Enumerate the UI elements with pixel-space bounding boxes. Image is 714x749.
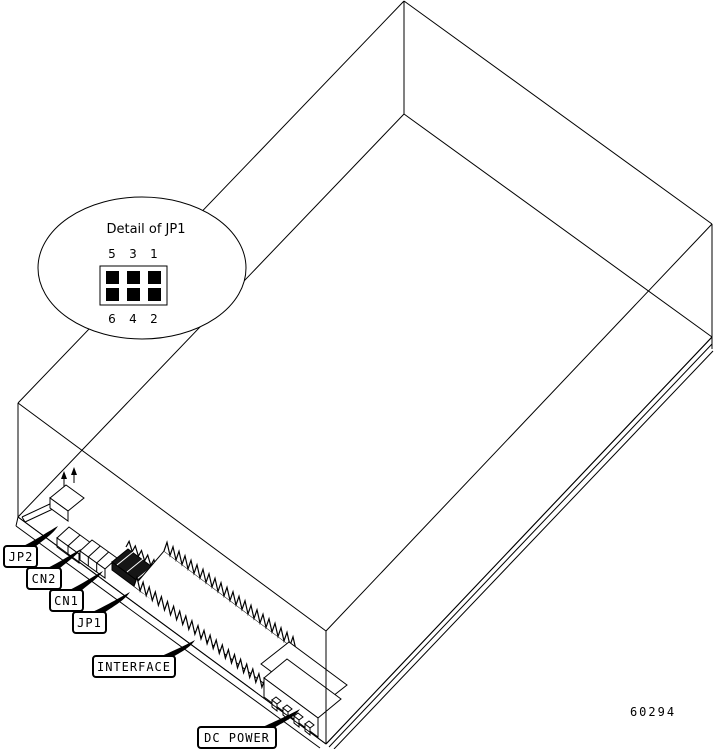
callout-label-jp2: JP2 (4, 526, 58, 567)
jp1-pin5-label: 5 (108, 247, 116, 261)
jp1-pin6-label: 6 (108, 312, 116, 326)
callout-text-jp1: JP1 (77, 616, 102, 630)
jp2-pin-arrowheads (61, 467, 77, 479)
callout-text-cn2: CN2 (32, 572, 57, 586)
callout-pointer-cn1 (67, 571, 103, 591)
detail-callout: Detail of JP1 5 3 1 6 4 2 (38, 197, 246, 339)
jp2-connector (22, 467, 84, 522)
cn1-connector (80, 540, 117, 578)
disk-drive-connector-diagram: Detail of JP1 5 3 1 6 4 2 JP2 CN2 CN1 (0, 0, 714, 749)
callout-pointer-interface (159, 640, 195, 657)
jp1-pin1-label: 1 (150, 247, 158, 261)
callout-text-dc-power: DC POWER (204, 731, 270, 745)
jp1-pin2-label: 2 (150, 312, 158, 326)
detail-callout-title: Detail of JP1 (106, 222, 185, 237)
jp1-pin4-label: 4 (129, 312, 137, 326)
chassis-vertical-edges (18, 1, 712, 744)
chassis-wireframe (18, 1, 712, 744)
diagram-canvas: Detail of JP1 5 3 1 6 4 2 JP2 CN2 CN1 (0, 0, 714, 749)
figure-number: 60294 (630, 705, 676, 719)
callout-text-interface: INTERFACE (97, 660, 171, 674)
chassis-bottom-strip (16, 337, 713, 749)
jp1-pin3-label: 3 (129, 247, 137, 261)
callout-text-jp2: JP2 (9, 550, 34, 564)
callout-pointer-jp2 (21, 526, 58, 547)
callout-text-cn1: CN1 (54, 594, 79, 608)
